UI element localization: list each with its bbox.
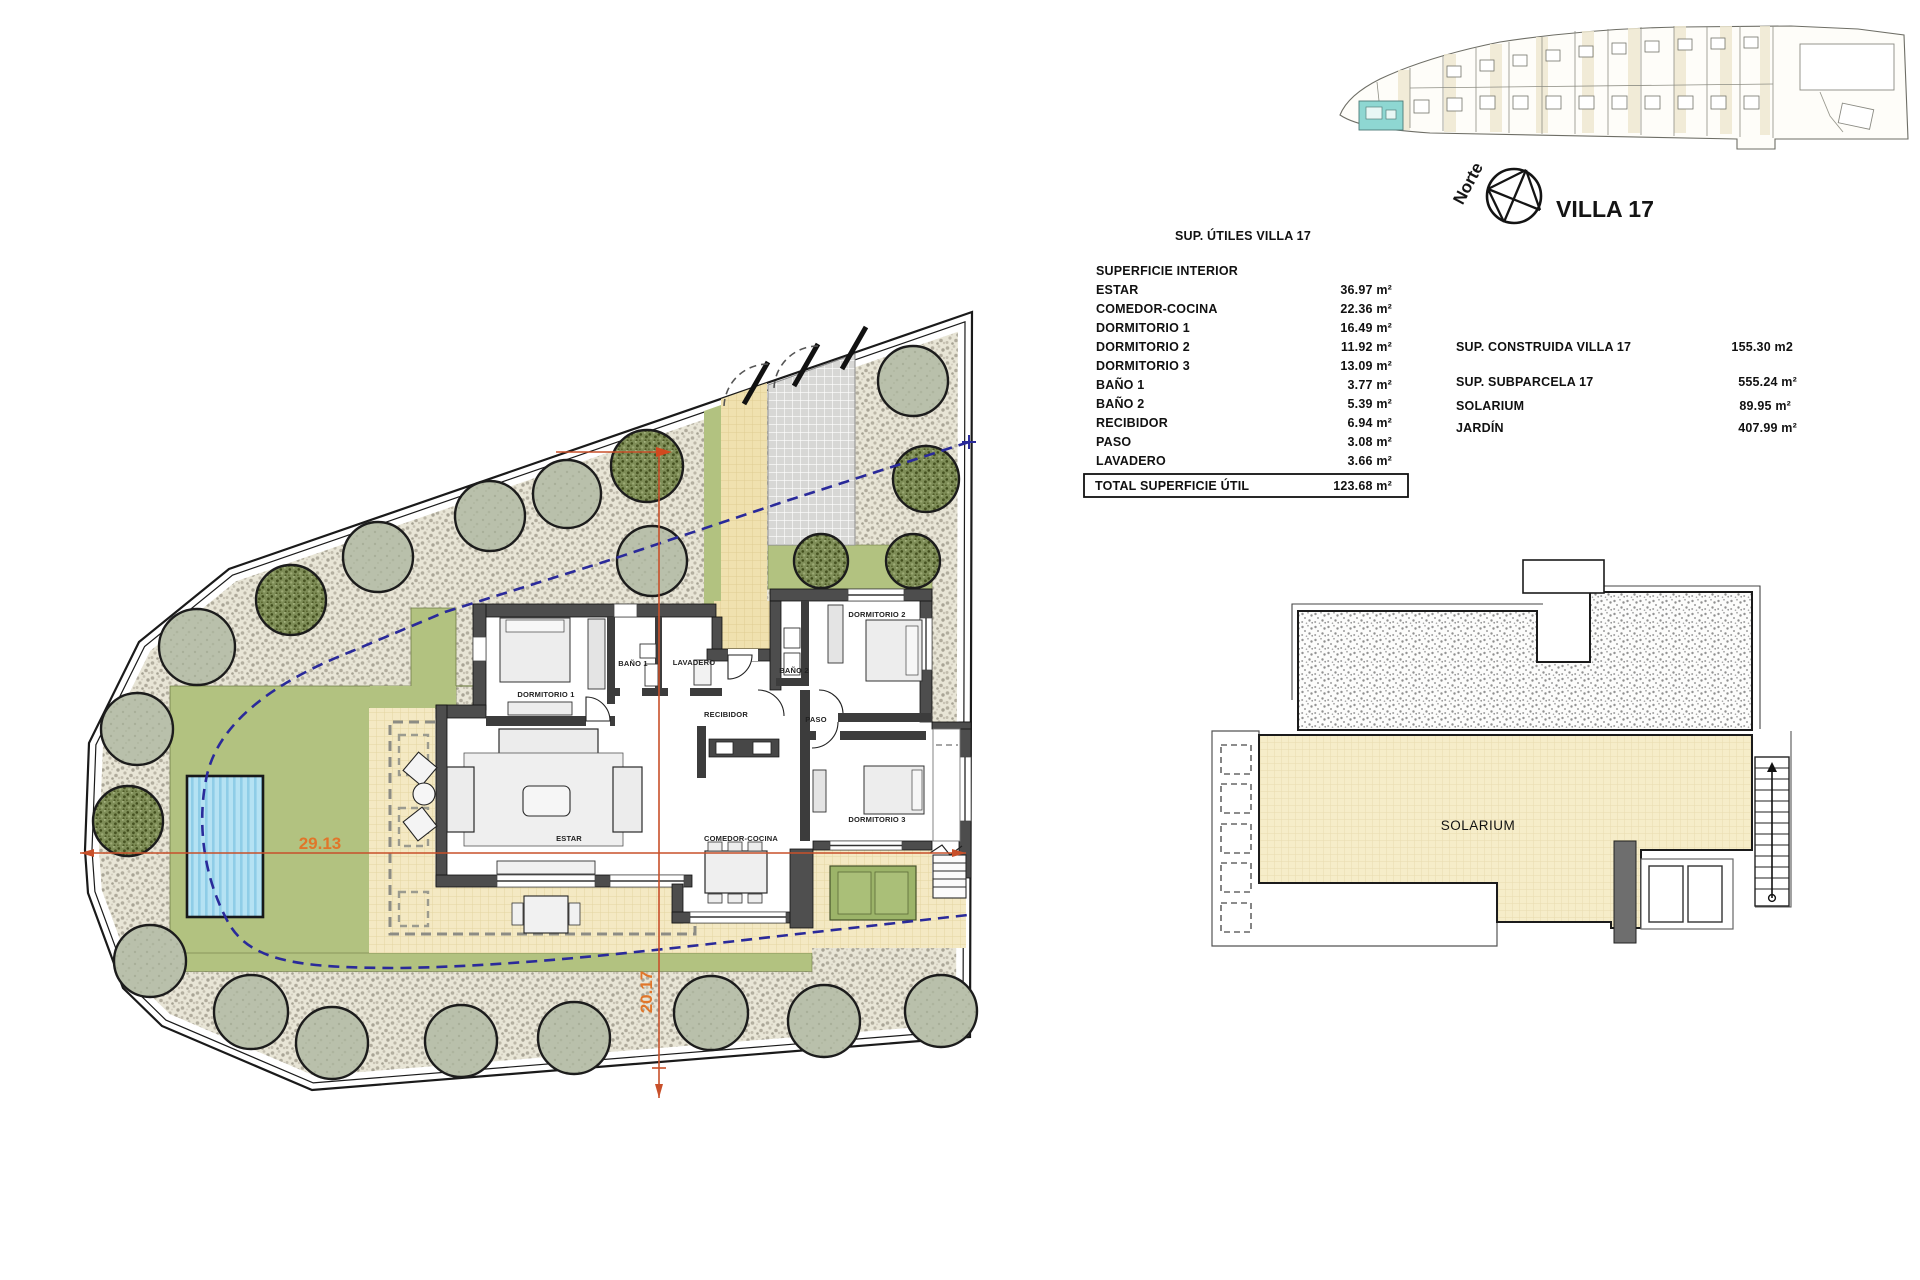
svg-text:SOLARIUM: SOLARIUM	[1441, 818, 1516, 833]
svg-text:DORMITORIO 2: DORMITORIO 2	[1096, 340, 1190, 354]
svg-text:13.09 m²: 13.09 m²	[1340, 359, 1392, 373]
svg-text:COMEDOR-COCINA: COMEDOR-COCINA	[704, 834, 778, 843]
svg-text:ESTAR: ESTAR	[1096, 283, 1138, 297]
svg-text:36.97 m²: 36.97 m²	[1340, 283, 1392, 297]
svg-text:20.17: 20.17	[637, 971, 656, 1014]
svg-text:3.08 m²: 3.08 m²	[1348, 435, 1392, 449]
svg-text:SOLARIUM: SOLARIUM	[1456, 399, 1524, 413]
svg-text:6.94 m²: 6.94 m²	[1348, 416, 1392, 430]
svg-text:DORMITORIO 1: DORMITORIO 1	[1096, 321, 1190, 335]
svg-text:SUPERFICIE INTERIOR: SUPERFICIE INTERIOR	[1096, 264, 1238, 278]
svg-text:BAÑO 2: BAÑO 2	[779, 666, 809, 675]
svg-text:LAVADERO: LAVADERO	[1096, 454, 1166, 468]
svg-text:RECIBIDOR: RECIBIDOR	[1096, 416, 1168, 430]
svg-text:555.24 m²: 555.24 m²	[1738, 375, 1797, 389]
svg-text:BAÑO 2: BAÑO 2	[1096, 396, 1144, 411]
svg-text:BAÑO 1: BAÑO 1	[618, 659, 648, 668]
svg-text:BAÑO 1: BAÑO 1	[1096, 377, 1144, 392]
svg-text:123.68 m²: 123.68 m²	[1333, 479, 1392, 493]
svg-text:TOTAL SUPERFICIE ÚTIL: TOTAL SUPERFICIE ÚTIL	[1095, 478, 1249, 493]
svg-text:22.36 m²: 22.36 m²	[1340, 302, 1392, 316]
svg-text:DORMITORIO 2: DORMITORIO 2	[848, 610, 905, 619]
svg-text:89.95 m²: 89.95 m²	[1739, 399, 1791, 413]
svg-text:407.99 m²: 407.99 m²	[1738, 421, 1797, 435]
svg-text:DORMITORIO 3: DORMITORIO 3	[1096, 359, 1190, 373]
svg-text:DORMITORIO 3: DORMITORIO 3	[848, 815, 905, 824]
svg-text:SUP. ÚTILES VILLA 17: SUP. ÚTILES VILLA 17	[1175, 228, 1311, 243]
svg-text:SUP. CONSTRUIDA VILLA 17: SUP. CONSTRUIDA VILLA 17	[1456, 340, 1631, 354]
svg-text:3.66 m²: 3.66 m²	[1348, 454, 1392, 468]
svg-text:3.77 m²: 3.77 m²	[1348, 378, 1392, 392]
svg-text:JARDÍN: JARDÍN	[1456, 420, 1504, 435]
svg-text:155.30 m2: 155.30 m2	[1731, 340, 1793, 354]
svg-text:DORMITORIO 1: DORMITORIO 1	[517, 690, 574, 699]
svg-text:29.13: 29.13	[299, 834, 342, 853]
svg-text:COMEDOR-COCINA: COMEDOR-COCINA	[1096, 302, 1218, 316]
svg-text:PASO: PASO	[1096, 435, 1131, 449]
svg-text:5.39 m²: 5.39 m²	[1348, 397, 1392, 411]
svg-text:11.92 m²: 11.92 m²	[1341, 340, 1392, 354]
svg-text:SUP. SUBPARCELA 17: SUP. SUBPARCELA 17	[1456, 375, 1593, 389]
svg-text:ESTAR: ESTAR	[556, 834, 582, 843]
svg-text:VILLA 17: VILLA 17	[1556, 196, 1654, 222]
svg-text:RECIBIDOR: RECIBIDOR	[704, 710, 748, 719]
svg-text:PASO: PASO	[805, 715, 827, 724]
svg-text:16.49 m²: 16.49 m²	[1340, 321, 1392, 335]
svg-text:LAVADERO: LAVADERO	[673, 658, 716, 667]
